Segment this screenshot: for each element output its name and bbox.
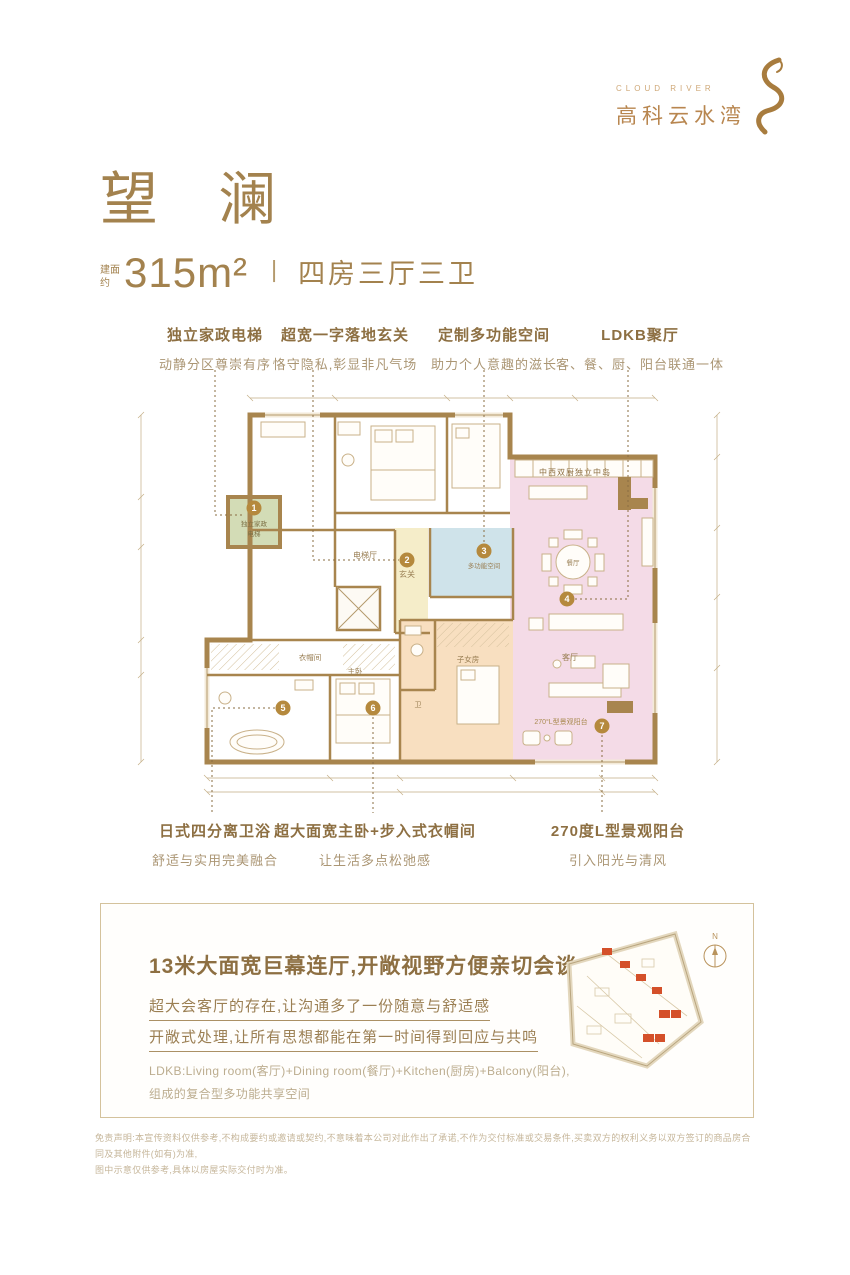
label-multi-room: 多功能空间 <box>468 561 501 570</box>
label-kitchen-island: 中西双厨独立中岛 <box>539 467 611 477</box>
feature-line-1: 超大会客厅的存在,让沟通多了一份随意与舒适感 <box>149 995 490 1021</box>
callout-title: 270度L型景观阳台 <box>551 820 685 841</box>
elevator-shaft <box>337 587 380 630</box>
callout-multi-room: 定制多功能空间 助力个人意趣的滋长 <box>431 324 557 373</box>
label-elevator-hall: 电梯厅 <box>353 550 377 560</box>
label-balcony: 270°L型景观阳台 <box>534 717 587 726</box>
site-key-plan: N <box>547 926 737 1081</box>
feature-box: 13米大面宽巨幕连厅,开敞视野方便亲切会谈 超大会客厅的存在,让沟通多了一份随意… <box>100 903 754 1118</box>
disclaimer-line-1: 免责声明:本宣传资料仅供参考,不构成要约或邀请或契约,不意味着本公司对此作出了承… <box>95 1130 757 1162</box>
callout-title: 独立家政电梯 <box>159 324 271 345</box>
label-closet: 衣帽间 <box>299 652 322 662</box>
marker-6: 6 <box>370 703 375 713</box>
callout-service-elevator: 独立家政电梯 动静分区尊崇有序 <box>159 324 271 373</box>
separator: 丨 <box>262 252 286 287</box>
callout-title: LDKB聚厅 <box>556 324 724 345</box>
callout-title: 超大面宽主卧+步入式衣帽间 <box>274 820 476 841</box>
compass-label: N <box>712 932 718 941</box>
brochure-page: CLOUD RIVER 高科云水湾 望 澜 建面约 315m² 丨 四房三厅三卫… <box>0 0 850 1275</box>
floor-plan: 独立家政 电梯 电梯厅 玄关 多功能空间 中西双厨独立中岛 餐厅 客厅 衣帽间 … <box>105 368 765 815</box>
label-master: 主卧 <box>348 666 363 676</box>
marker-4: 4 <box>564 594 569 604</box>
marker-3: 3 <box>481 546 486 556</box>
callout-master-suite: 超大面宽主卧+步入式衣帽间 让生活多点松弛感 <box>274 820 476 869</box>
marker-2: 2 <box>404 555 409 565</box>
disclaimer-line-2: 图中示意仅供参考,具体以房屋实际交付时为准。 <box>95 1162 757 1178</box>
marker-7: 7 <box>599 721 604 731</box>
brand-logo: CLOUD RIVER 高科云水湾 <box>616 56 792 136</box>
label-living: 客厅 <box>562 652 578 662</box>
callout-balcony: 270度L型景观阳台 引入阳光与清风 <box>551 820 685 869</box>
callout-subtitle: 舒适与实用完美融合 <box>152 850 278 869</box>
callout-title: 定制多功能空间 <box>431 324 557 345</box>
title-block: 望 澜 建面约 315m² 丨 四房三厅三卫 <box>100 152 478 293</box>
ribbon-icon <box>746 56 792 136</box>
callout-subtitle: 让生活多点松弛感 <box>274 850 476 869</box>
brand-name: 高科云水湾 <box>616 100 746 130</box>
marker-5: 5 <box>280 703 285 713</box>
marker-1: 1 <box>251 503 256 513</box>
callout-ldkb: LDKB聚厅 客、餐、厨、阳台联通一体 <box>556 324 724 373</box>
label-foyer: 玄关 <box>399 569 415 579</box>
feature-note-1: LDKB:Living room(客厅)+Dining room(餐厅)+Kit… <box>149 1062 570 1079</box>
disclaimer: 免责声明:本宣传资料仅供参考,不构成要约或邀请或契约,不意味着本公司对此作出了承… <box>95 1130 757 1179</box>
feature-line-2: 开敞式处理,让所有思想都能在第一时间得到回应与共鸣 <box>149 1026 538 1052</box>
area-prefix: 建面约 <box>100 265 124 290</box>
unit-title: 望 澜 <box>100 152 478 236</box>
label-dining: 餐厅 <box>567 558 581 567</box>
unit-area: 315m² <box>124 253 248 293</box>
feature-note-2: 组成的复合型多功能共享空间 <box>149 1085 310 1102</box>
brand-english: CLOUD RIVER <box>616 84 746 93</box>
callout-title: 日式四分离卫浴 <box>152 820 278 841</box>
zone-fills <box>228 457 655 762</box>
label-bath: 卫 <box>415 701 422 709</box>
callout-subtitle: 引入阳光与清风 <box>551 850 685 869</box>
label-service-elevator-2: 电梯 <box>248 529 262 538</box>
callout-bathroom: 日式四分离卫浴 舒适与实用完美融合 <box>152 820 278 869</box>
callout-foyer: 超宽一字落地玄关 恪守隐私,彰显非凡气场 <box>273 324 418 373</box>
label-kids: 子女房 <box>457 654 480 664</box>
feature-title: 13米大面宽巨幕连厅,开敞视野方便亲切会谈 <box>149 950 577 980</box>
label-service-elevator: 独立家政 <box>241 519 268 528</box>
callout-title: 超宽一字落地玄关 <box>273 324 418 345</box>
compass-icon: N <box>704 932 726 967</box>
unit-rooms: 四房三厅三卫 <box>298 252 478 291</box>
